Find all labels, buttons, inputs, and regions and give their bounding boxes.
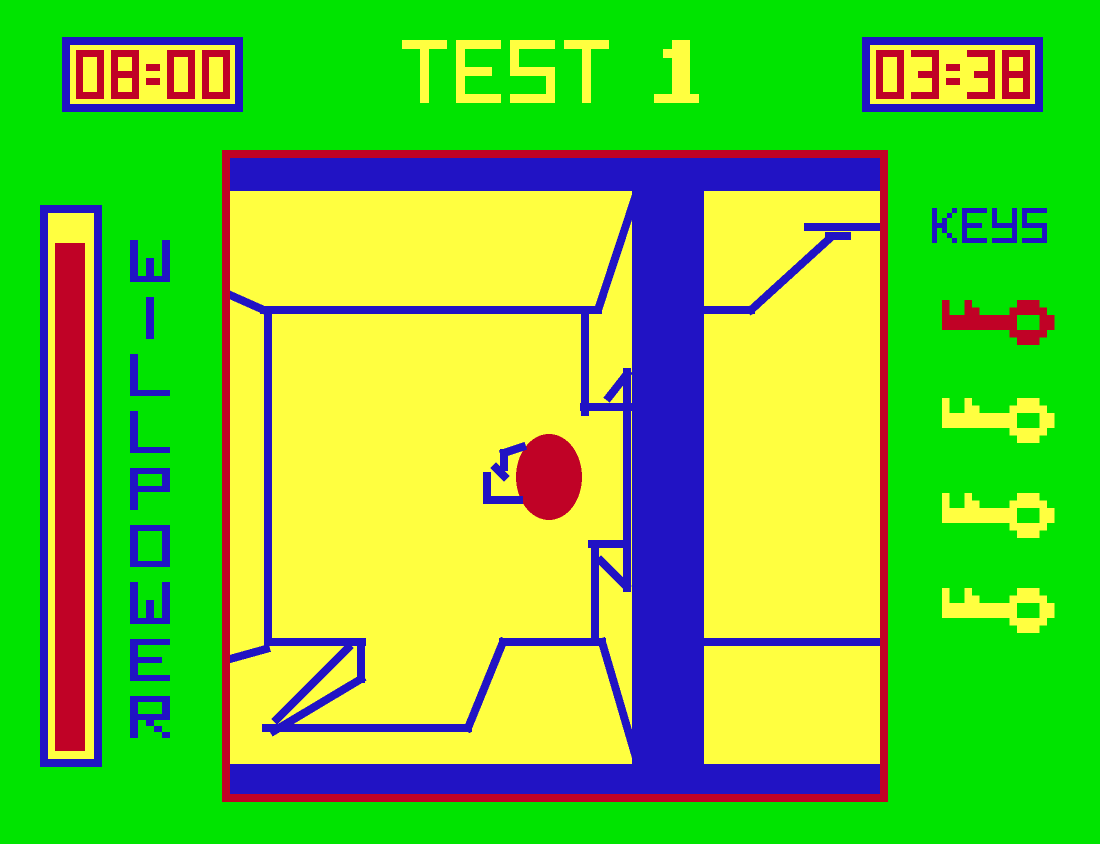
willpower-label xyxy=(110,240,190,753)
willpower-meter xyxy=(40,205,102,767)
willpower-letter xyxy=(110,354,190,396)
timer-right xyxy=(862,37,1043,112)
willpower-letter xyxy=(110,297,190,339)
willpower-letter xyxy=(110,525,190,567)
game-view[interactable] xyxy=(222,150,888,802)
willpower-meter-fill xyxy=(55,243,85,751)
key-icon-red-0 xyxy=(942,300,1055,345)
willpower-letter xyxy=(110,696,190,738)
willpower-letter xyxy=(110,240,190,282)
willpower-meter-track xyxy=(48,213,94,759)
willpower-letter xyxy=(110,411,190,453)
key-icon-yellow-2 xyxy=(942,493,1055,538)
key-icon-yellow-1 xyxy=(942,398,1055,443)
key-icon-yellow-3 xyxy=(942,588,1055,633)
timer-left xyxy=(62,37,243,112)
willpower-letter xyxy=(110,639,190,681)
willpower-letter xyxy=(110,468,190,510)
timer-right-display xyxy=(870,45,1035,104)
page-title xyxy=(402,40,699,103)
game-screen xyxy=(0,0,1100,844)
timer-left-display xyxy=(70,45,235,104)
willpower-letter xyxy=(110,582,190,624)
keys-label xyxy=(932,208,1047,243)
